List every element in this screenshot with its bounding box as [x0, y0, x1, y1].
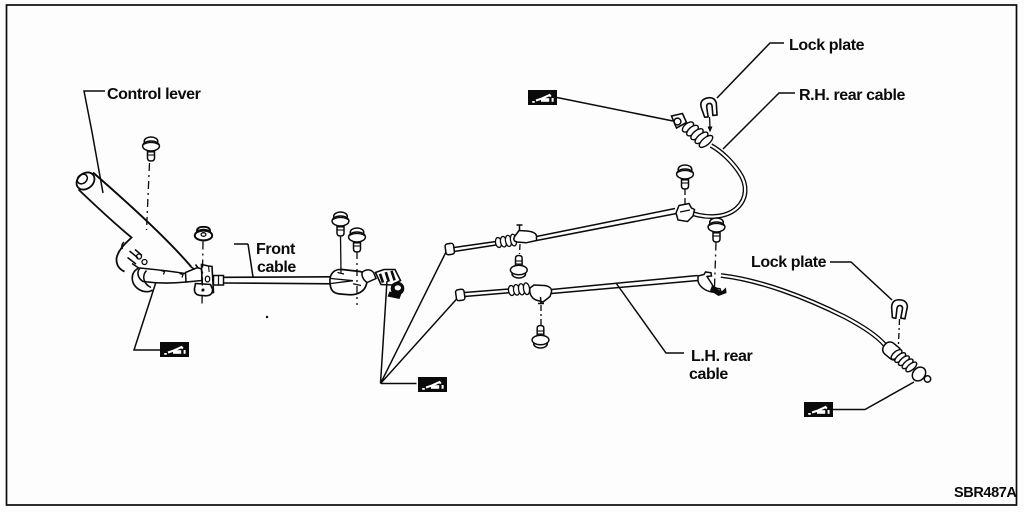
- svg-text:cable: cable: [257, 259, 296, 276]
- svg-text:SBR487A: SBR487A: [954, 485, 1017, 501]
- svg-text:Lock plate: Lock plate: [789, 37, 865, 54]
- svg-text:Control lever: Control lever: [107, 86, 201, 103]
- svg-text:cable: cable: [689, 366, 728, 383]
- svg-text:Lock plate: Lock plate: [751, 254, 827, 271]
- svg-text:Front: Front: [256, 241, 296, 258]
- svg-text:L.H. rear: L.H. rear: [691, 348, 752, 365]
- svg-text:R.H. rear cable: R.H. rear cable: [799, 87, 906, 104]
